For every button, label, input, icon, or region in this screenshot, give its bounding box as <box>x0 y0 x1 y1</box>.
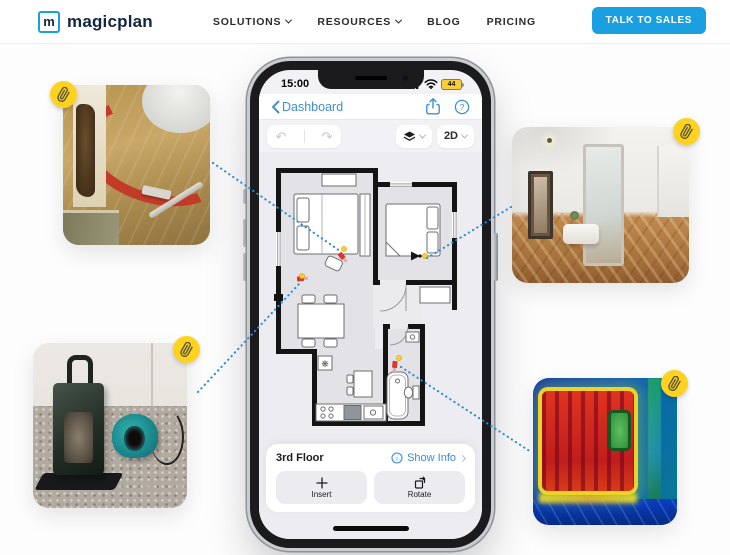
nav-item-resources[interactable]: RESOURCES <box>317 16 401 28</box>
water-damage-photo <box>63 85 210 245</box>
volume-down-button <box>243 253 247 281</box>
attachment-badge <box>673 118 700 145</box>
attachment-badge <box>173 336 200 363</box>
photo-image <box>512 127 689 283</box>
paperclip-icon <box>56 87 71 102</box>
share-icon[interactable] <box>426 98 440 115</box>
photo-image <box>63 85 210 245</box>
rotate-label: Rotate <box>408 490 432 499</box>
vent-fan-icon: ❋ <box>321 359 329 369</box>
rotate-icon <box>413 476 427 489</box>
help-icon[interactable]: ? <box>454 99 470 115</box>
paperclip-icon <box>667 376 682 391</box>
redo-icon[interactable]: ↷ <box>322 130 333 143</box>
view-mode-selector[interactable]: 2D <box>437 125 474 148</box>
insert-button[interactable]: Insert <box>276 471 367 504</box>
divider <box>304 130 305 143</box>
logo-m-icon: m <box>38 11 60 33</box>
battery-icon: 44 <box>441 79 462 90</box>
layers-icon <box>403 131 416 142</box>
view-mode-label: 2D <box>444 130 458 142</box>
chevron-down-icon <box>395 17 402 24</box>
chevron-down-icon <box>285 17 292 24</box>
app-header: Dashboard ? <box>259 94 482 120</box>
phone-screen: 15:00 44 Dashboa <box>259 70 482 539</box>
nav-item-solutions[interactable]: SOLUTIONS <box>213 16 291 28</box>
insert-label: Insert <box>311 490 331 499</box>
front-camera <box>402 75 408 81</box>
nav-menu: SOLUTIONS RESOURCES BLOG PRICING <box>213 16 536 28</box>
floor-plan-canvas[interactable]: ❋ <box>259 152 482 539</box>
room-panorama-photo <box>512 127 689 283</box>
phone-notch <box>318 70 424 89</box>
clock: 15:00 <box>281 78 309 90</box>
talk-to-sales-button[interactable]: TALK TO SALES <box>592 7 706 34</box>
home-indicator[interactable] <box>333 526 409 531</box>
back-to-dashboard-button[interactable]: Dashboard <box>271 100 343 114</box>
chevron-down-icon <box>461 131 468 138</box>
nav-item-label: PRICING <box>487 16 536 28</box>
paperclip-icon <box>179 342 194 357</box>
floor-bottom-sheet: 3rd Floor i Show Info <box>266 444 475 512</box>
nav-item-label: RESOURCES <box>317 16 391 28</box>
wifi-icon <box>424 79 438 89</box>
show-info-link[interactable]: i Show Info <box>391 452 465 464</box>
top-navigation: m magicplan SOLUTIONS RESOURCES BLOG PRI… <box>0 0 730 44</box>
phone-mockup: 15:00 44 Dashboa <box>250 61 491 548</box>
power-button <box>494 233 498 281</box>
thermal-radiator-photo <box>533 378 677 525</box>
back-label: Dashboard <box>282 100 343 114</box>
logo-text: magicplan <box>67 12 153 32</box>
attachment-badge <box>50 81 77 108</box>
magicplan-logo[interactable]: m magicplan <box>38 11 153 33</box>
undo-icon[interactable]: ↶ <box>276 130 287 143</box>
show-info-label: Show Info <box>407 452 456 464</box>
speaker-slot <box>355 76 387 80</box>
plus-icon <box>316 477 328 489</box>
nav-item-label: SOLUTIONS <box>213 16 281 28</box>
drying-equipment-photo <box>33 343 187 508</box>
svg-text:i: i <box>396 455 398 463</box>
layers-selector[interactable] <box>396 125 432 148</box>
nav-item-pricing[interactable]: PRICING <box>487 16 536 28</box>
floor-label: 3rd Floor <box>276 452 324 464</box>
nav-item-blog[interactable]: BLOG <box>427 16 461 28</box>
volume-up-button <box>243 219 247 247</box>
photo-image <box>533 378 677 525</box>
svg-text:?: ? <box>460 102 465 112</box>
rotate-button[interactable]: Rotate <box>374 471 465 504</box>
floor-plan: ❋ <box>274 166 464 430</box>
back-chevron-icon <box>271 100 280 114</box>
editor-toolbar: ↶ ↷ 2D <box>259 120 482 152</box>
info-icon: i <box>391 452 403 464</box>
paperclip-icon <box>679 124 694 139</box>
mute-switch <box>243 189 247 204</box>
chevron-down-icon <box>419 131 426 138</box>
photo-image <box>33 343 187 508</box>
nav-item-label: BLOG <box>427 16 461 28</box>
chevron-right-icon <box>459 454 466 461</box>
undo-redo-group: ↶ ↷ <box>267 125 341 148</box>
attachment-badge <box>661 370 688 397</box>
